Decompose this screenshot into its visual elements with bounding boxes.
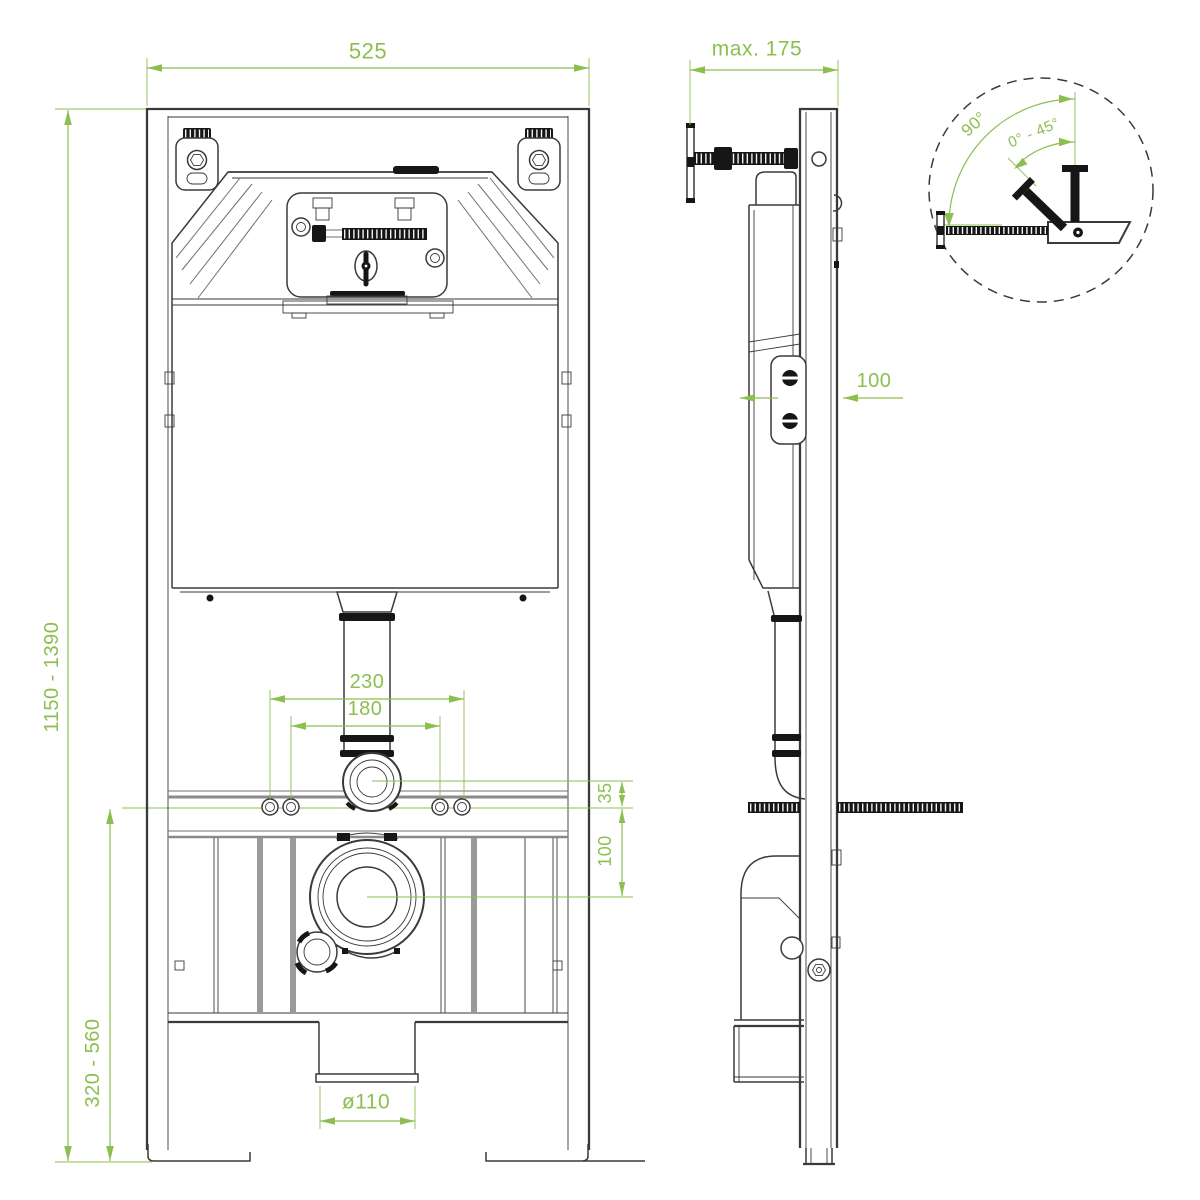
technical-drawing-page: 90° 0° - 45° 525 max. 175 — [0, 0, 1200, 1200]
threaded-rod — [748, 802, 963, 813]
wc-frame-installation-drawing: 90° 0° - 45° 525 max. 175 — [0, 0, 1200, 1200]
dim-fixing-centres-outer-label: 230 — [350, 671, 385, 693]
dim-frame-depth-label: max. 175 — [712, 38, 802, 61]
dim-installation-height-label: 1150 - 1390 — [41, 622, 63, 733]
dim-outlet-height-label: 320 - 560 — [82, 1018, 104, 1107]
access-window — [287, 193, 447, 297]
cistern-screw-left — [207, 595, 214, 602]
dim-fixing-centres-inner-label: 180 — [348, 698, 383, 720]
dim-flush-offset-label: 35 — [595, 782, 615, 803]
flush-elbow — [343, 753, 401, 811]
dim-frame-width-label: 525 — [349, 39, 387, 64]
dim-drain-diameter-label: ø110 — [342, 1091, 390, 1114]
wall-fixing-plate — [771, 356, 806, 444]
inlet-connector — [297, 932, 337, 973]
dim-wall-offset-label: 100 — [857, 370, 892, 392]
cistern-screw-right — [520, 595, 527, 602]
dim-outlet-offset-label: 100 — [595, 835, 615, 867]
